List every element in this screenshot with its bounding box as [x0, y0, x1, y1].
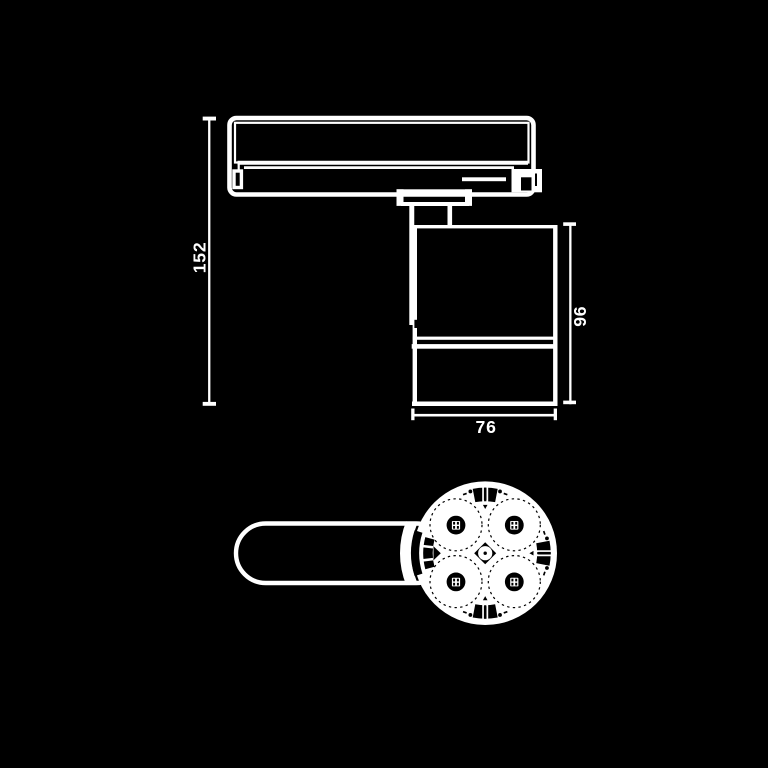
svg-text:76: 76 — [476, 417, 497, 437]
svg-text:96: 96 — [570, 306, 590, 327]
svg-text:152: 152 — [189, 242, 209, 274]
